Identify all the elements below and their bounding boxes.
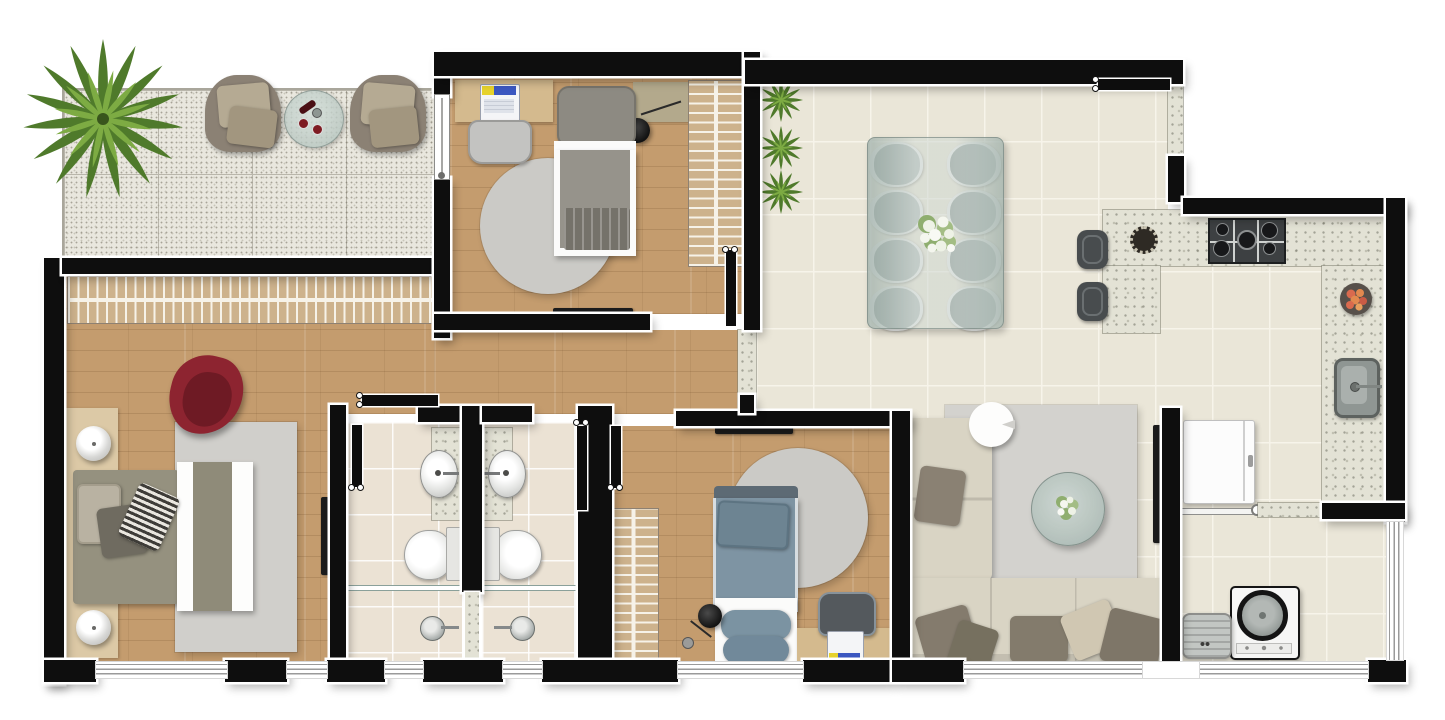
sink-faucet xyxy=(443,472,459,475)
master-bedroom-door xyxy=(362,395,438,406)
laptop-screen xyxy=(829,653,860,659)
hallway-floor xyxy=(434,330,740,414)
bedroom-2-wardrobe xyxy=(608,508,659,672)
glass-door-line xyxy=(441,98,443,174)
sink-drain xyxy=(503,470,509,476)
bar-stool xyxy=(1077,282,1108,321)
bedroom-2-desk-chair xyxy=(818,592,876,636)
door-hinge xyxy=(348,484,355,491)
refrigerator-handle xyxy=(1248,455,1253,467)
bathroom-1-shower-valve xyxy=(420,616,445,641)
armchair-cushion xyxy=(368,106,420,149)
wall-hall-stub xyxy=(740,395,754,413)
sink-faucet xyxy=(1356,385,1382,388)
balcony-glass-table xyxy=(284,90,344,148)
wall-bedroom2-top xyxy=(676,411,910,426)
bathroom-1-toilet-bowl xyxy=(404,530,452,580)
bedroom-2-quilt xyxy=(723,636,789,664)
bathroom-2-cistern xyxy=(481,527,500,581)
decor-plate xyxy=(1130,226,1158,254)
window-master xyxy=(96,662,227,678)
bedroom-2-door xyxy=(611,426,621,488)
door-hinge xyxy=(356,392,363,399)
entry-door xyxy=(1098,79,1170,90)
palm-plant xyxy=(18,28,188,210)
bedroom-2-tv xyxy=(715,427,793,434)
door-hinge xyxy=(1092,76,1099,83)
wall-kitchen-stub xyxy=(1168,156,1184,202)
wine-glass xyxy=(298,118,309,129)
laptop-keys xyxy=(484,99,514,113)
wall-living-right xyxy=(1162,408,1180,662)
window-master-2 xyxy=(287,662,327,678)
coffee-table-flowers xyxy=(1048,489,1086,527)
master-tv xyxy=(321,497,329,575)
armchair-cushion xyxy=(226,105,278,149)
bathroom-1-shower-arm xyxy=(441,626,459,629)
wall-laundry-stub xyxy=(1322,503,1405,519)
bedroom-1-bed-pillow xyxy=(557,86,636,147)
wall-bathrooms-middle xyxy=(462,406,482,592)
laundry-basket xyxy=(1182,613,1232,659)
burner xyxy=(1216,223,1229,236)
door-hinge xyxy=(573,419,580,426)
threshold-living-laundry xyxy=(1143,662,1200,678)
sofa-pillow xyxy=(913,465,966,527)
glass-door-handle xyxy=(438,172,445,179)
wall-bottom xyxy=(44,660,96,682)
dining-plant xyxy=(757,124,805,172)
door-hinge xyxy=(722,246,729,253)
wall-bathroom2-top xyxy=(482,406,532,422)
wall-bathroom1-top xyxy=(418,406,464,422)
window-bathroom-1 xyxy=(385,662,423,678)
burner xyxy=(1213,240,1230,257)
wall-right-upper xyxy=(1386,198,1405,522)
service-half-wall xyxy=(1258,503,1322,517)
wall-bottom xyxy=(423,660,503,682)
laptop-screen xyxy=(482,86,516,95)
floor-lamp-base xyxy=(682,637,694,649)
dining-plant xyxy=(757,168,805,216)
bathroom-2-shower-glass xyxy=(482,585,578,591)
kitchen-counter-strip xyxy=(1168,84,1183,158)
wall-left xyxy=(44,258,64,684)
bathroom-2-door xyxy=(577,426,587,510)
door-hinge xyxy=(731,246,738,253)
wall-bottom-right-corner xyxy=(1368,660,1406,682)
door-hinge xyxy=(582,419,589,426)
wall-bottom xyxy=(542,660,678,682)
fruit xyxy=(1342,285,1370,313)
washer-panel xyxy=(1236,643,1292,654)
window-laundry xyxy=(1200,662,1368,678)
bathroom-2-shower-arm xyxy=(494,626,512,629)
refrigerator-door-line xyxy=(1243,421,1245,501)
wall-balcony-master xyxy=(62,258,440,274)
living-tv xyxy=(1153,425,1161,543)
bedside-shelf xyxy=(633,82,695,122)
door-hinge xyxy=(357,484,364,491)
sofa-pillow xyxy=(1010,616,1068,662)
bathroom-1-shower-glass xyxy=(346,585,462,591)
window-right-laundry xyxy=(1387,522,1403,660)
bathroom-2-shower-valve xyxy=(510,616,535,641)
floor-plan xyxy=(0,0,1445,720)
master-wardrobe xyxy=(67,276,436,324)
wall-bedroom1-bottom xyxy=(434,314,650,330)
bathroom-2-toilet-bowl xyxy=(494,530,542,580)
wall-bottom xyxy=(892,660,964,682)
wall-bathroom1-left xyxy=(330,405,346,662)
burner xyxy=(1261,222,1278,239)
bedside-lamp xyxy=(76,610,111,645)
bedroom-2-pillow xyxy=(716,500,790,550)
wall-bedroom1-top xyxy=(434,52,760,76)
window-bathroom-2 xyxy=(503,662,542,678)
washer-lid-dot xyxy=(1259,612,1266,619)
wall-bedroom1-right xyxy=(744,52,760,330)
door-hinge xyxy=(607,484,614,491)
door-hinge xyxy=(1092,85,1099,92)
bedroom-1-door xyxy=(726,250,736,326)
master-bed-runner-stripe xyxy=(193,462,232,611)
window-living xyxy=(964,662,1143,678)
wall-bedroom2-right xyxy=(892,411,910,662)
sink-drain xyxy=(435,470,441,476)
wine-glass xyxy=(312,124,323,135)
kitchen-counter-left xyxy=(1103,266,1160,333)
wall-bottom xyxy=(225,660,287,682)
bathroom-1-door xyxy=(352,425,362,487)
bedroom-1-wardrobe xyxy=(688,80,744,267)
floor-lamp xyxy=(698,604,722,628)
burner xyxy=(1263,242,1276,255)
sink-faucet xyxy=(484,472,500,475)
folded-blanket xyxy=(564,208,630,250)
wall-bottom xyxy=(803,660,892,682)
bar-stool xyxy=(1077,230,1108,269)
door-hinge xyxy=(616,484,623,491)
wall-kitchen-top xyxy=(1183,198,1405,214)
flower-centerpiece xyxy=(905,202,967,264)
wall-bottom xyxy=(327,660,385,682)
desk-chair xyxy=(468,120,532,164)
bedside-lamp xyxy=(76,426,111,461)
wall-shower-divider xyxy=(465,592,479,662)
window-bedroom-2 xyxy=(678,662,803,678)
corkscrew xyxy=(312,108,322,118)
burner xyxy=(1237,230,1257,250)
door-hinge xyxy=(356,401,363,408)
basket-clips xyxy=(1200,640,1210,648)
towel-rail xyxy=(1178,508,1256,515)
